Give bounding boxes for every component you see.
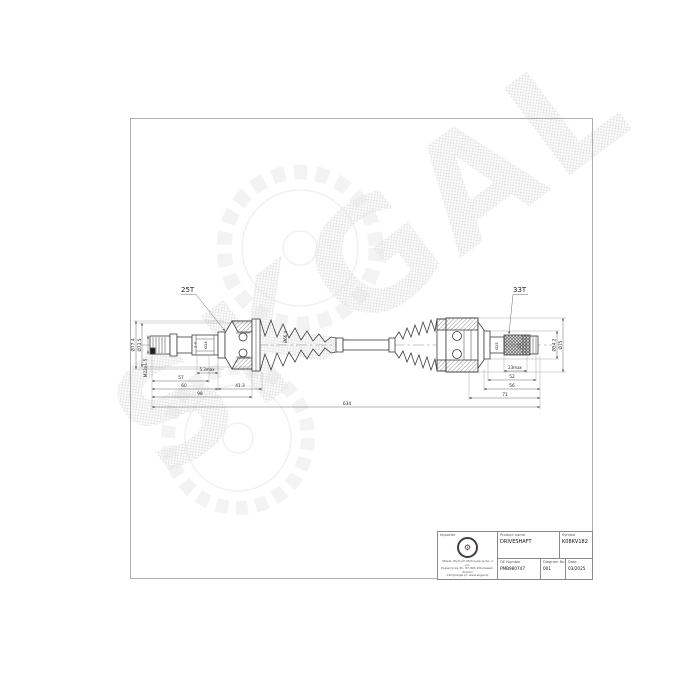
importer-label: Importer bbox=[440, 533, 456, 537]
drawing-sheet: SKGAL bbox=[0, 0, 700, 700]
diagram-no-value: 001 bbox=[543, 566, 563, 571]
date-label: Date bbox=[568, 560, 590, 564]
symbol-cell: Symbol K08KV182 bbox=[560, 532, 592, 558]
title-block: Importer ⚙ SKGAL Wytrych Motoryzacja Sp.… bbox=[437, 531, 593, 580]
oe-number-cell: OE Number PMB980747 bbox=[498, 559, 541, 579]
diagram-no-cell: Diagram No 001 bbox=[541, 559, 566, 579]
brand-logo: ⚙ bbox=[457, 537, 478, 558]
date-cell: Date 03/2025 bbox=[566, 559, 592, 579]
title-block-fields: Product name DRIVESHAFT Symbol K08KV182 … bbox=[498, 532, 592, 579]
importer-cell: Importer ⚙ SKGAL Wytrych Motoryzacja Sp.… bbox=[438, 532, 498, 579]
product-name-cell: Product name DRIVESHAFT bbox=[498, 532, 560, 558]
company-address: SKGAL Wytrych Motoryzacja Sp. z o.o. Pap… bbox=[440, 560, 496, 578]
product-name-value: DRIVESHAFT bbox=[500, 539, 557, 545]
company-line: info@skgal.pl, www.skgal.pl bbox=[440, 574, 496, 578]
oe-number-label: OE Number bbox=[500, 560, 538, 564]
diagram-no-label: Diagram No bbox=[543, 560, 563, 564]
symbol-value: K08KV182 bbox=[562, 539, 590, 545]
product-name-label: Product name bbox=[500, 533, 557, 537]
gear-icon: ⚙ bbox=[464, 544, 471, 552]
symbol-label: Symbol bbox=[562, 533, 590, 537]
sheet-frame bbox=[130, 118, 593, 579]
date-value: 03/2025 bbox=[568, 566, 590, 571]
oe-number-value: PMB980747 bbox=[500, 566, 538, 571]
